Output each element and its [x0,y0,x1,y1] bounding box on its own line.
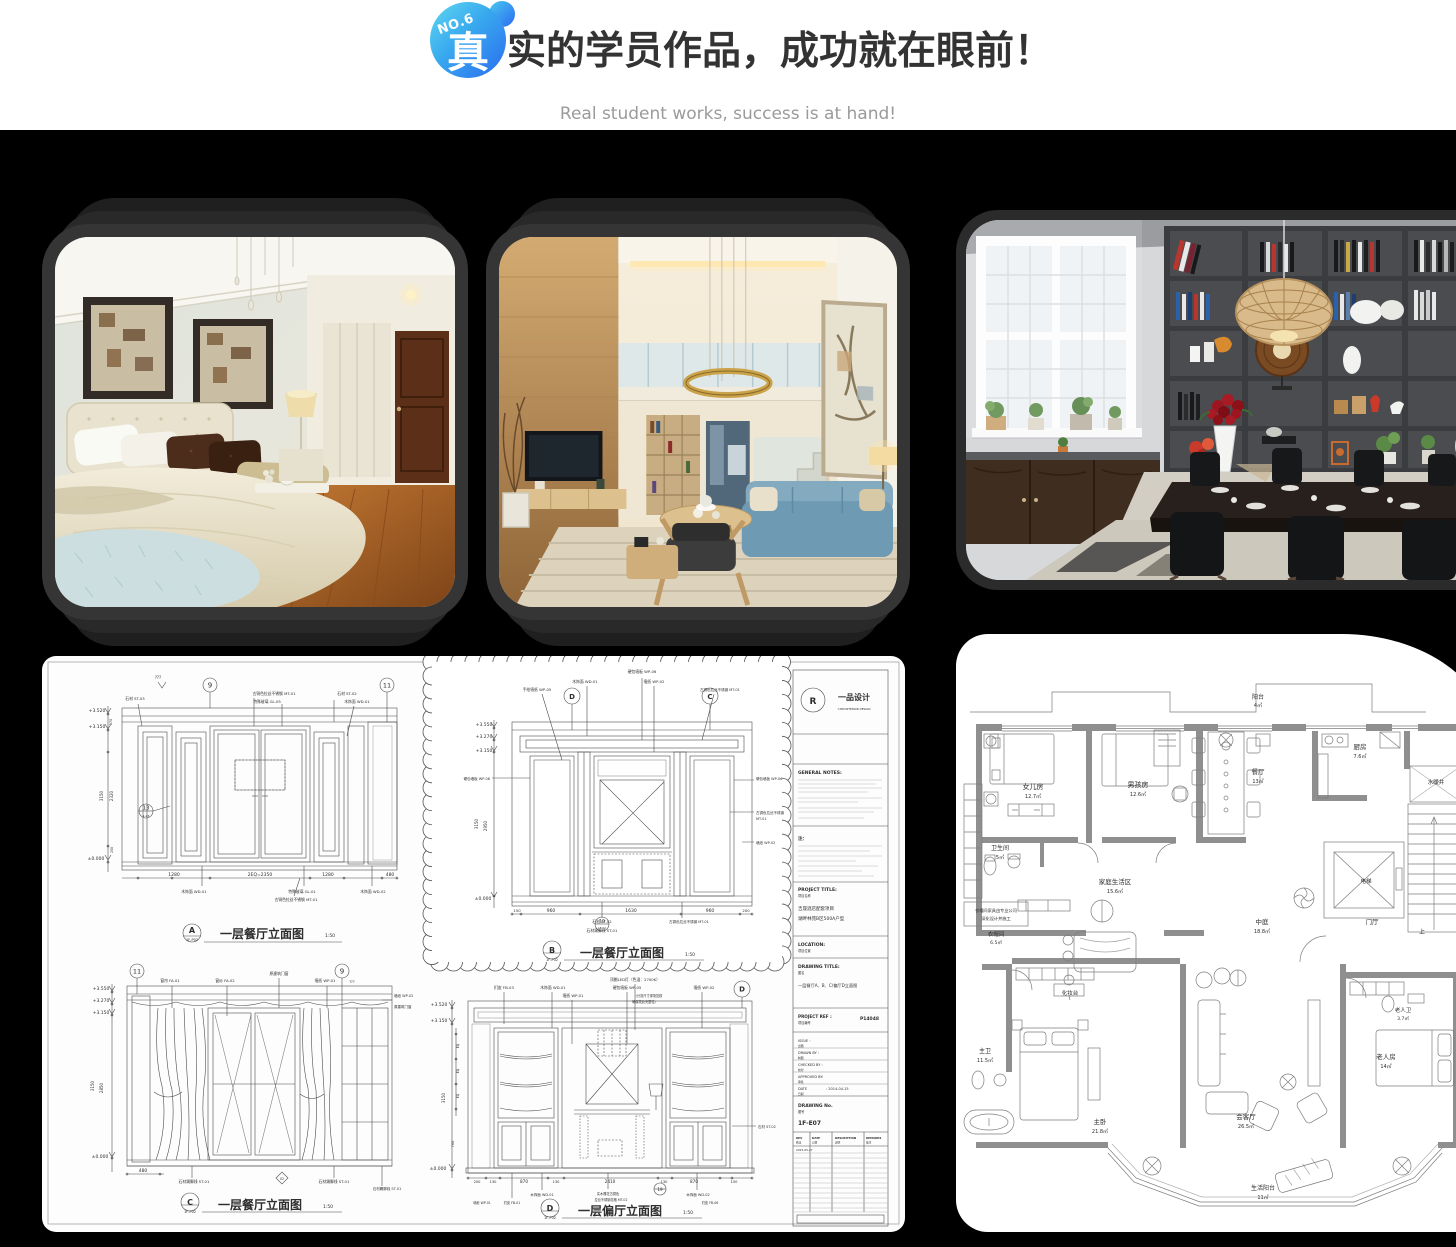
svg-text:3150: 3150 [441,1092,446,1103]
svg-text:15.6㎡: 15.6㎡ [1107,888,1123,895]
svg-text:3.7㎡: 3.7㎡ [1397,1015,1409,1022]
svg-text:19: 19 [657,1187,663,1192]
svg-text:古铜色拉丝不锈钢: 古铜色拉丝不锈钢 [756,810,784,815]
svg-text:项目名称: 项目名称 [798,893,812,898]
stairs [1408,804,1456,932]
svg-text:1:50: 1:50 [323,1204,333,1210]
svg-text:确保花纹完整性）: 确保花纹完整性） [632,999,658,1004]
svg-text:一层餐厅立面图: 一层餐厅立面图 [220,926,304,941]
svg-text:拉丝不锈钢花格 MT-02: 拉丝不锈钢花格 MT-02 [595,1197,628,1202]
svg-text:一层餐厅立面图: 一层餐厅立面图 [580,945,664,960]
svg-text:7.6㎡: 7.6㎡ [1354,753,1367,760]
svg-text:特殊玻璃 GL-01: 特殊玻璃 GL-01 [288,889,316,894]
photo-card-bedroom[interactable] [42,224,468,620]
svg-text:阳台: 阳台 [1252,693,1264,701]
living-room-photo [499,237,897,607]
svg-text:校对: 校对 [798,1068,804,1072]
svg-text:APPROVED BY:: APPROVED BY: [798,1075,823,1079]
svg-text:图号: 图号 [798,1109,804,1114]
svg-text:DRAWN BY :: DRAWN BY : [798,1051,819,1055]
svg-text:960: 960 [547,908,556,914]
svg-text:顶棚LED灯（色温：2700K）: 顶棚LED灯（色温：2700K） [610,977,660,982]
svg-text:1F-P02: 1F-P02 [184,1210,196,1214]
blue-sofa [742,481,893,557]
svg-text:深化设计并施工: 深化设计并施工 [981,915,1010,922]
svg-text:1-03: 1-03 [143,814,150,818]
bookshelf [646,415,700,515]
svg-text:石材踢脚线 ST-01: 石材踢脚线 ST-01 [179,1179,210,1184]
svg-text:2850: 2850 [99,1082,104,1093]
svg-text:特殊玻璃 GL-05: 特殊玻璃 GL-05 [253,699,281,704]
svg-text:实木雕花古铜色: 实木雕花古铜色 [597,1191,620,1196]
svg-text:REV: REV [796,1136,803,1140]
svg-text:2950: 2950 [483,820,488,831]
kitchen-fixtures [1318,732,1400,798]
elevation-sheet: ???+3.520+3.150±0.0003703150232025012802… [42,656,905,1232]
svg-text:古铜色拉丝不锈钢 MT-01: 古铜色拉丝不锈钢 MT-01 [252,691,296,696]
svg-text:18.8㎡: 18.8㎡ [1254,928,1270,935]
svg-text:石材踢脚线 ST-01: 石材踢脚线 ST-01 [587,928,618,933]
svg-text:木饰面 WD-01: 木饰面 WD-01 [530,1192,554,1197]
svg-text:C: C [707,693,712,701]
svg-text:1:50: 1:50 [683,1210,693,1216]
svg-text:DATE: DATE [798,1087,807,1091]
floor-plan: 女儿房12.7㎡男孩房12.6㎡阳台4㎡餐厅13㎡厨房7.6㎡水暖井电梯中庭18… [956,634,1456,1232]
svg-text:墙纸 WP-01: 墙纸 WP-01 [563,993,585,998]
lounge-furniture [1196,968,1328,1132]
svg-text:2015.05.27: 2015.05.27 [796,1148,813,1152]
svg-text:MT-01: MT-01 [756,817,767,821]
svg-text:11㎡: 11㎡ [1257,1194,1268,1201]
svg-text:主卫: 主卫 [979,1047,991,1055]
balcony-items [1219,733,1270,747]
note-box [964,902,1028,926]
student-works-section: NO.6 真 实的学员作品，成功就在眼前！ Real student works… [0,0,1456,1247]
svg-text:1280: 1280 [168,872,180,878]
svg-text:6.5㎡: 6.5㎡ [990,939,1002,946]
svg-text:石材踢脚线 ST-01: 石材踢脚线 ST-01 [319,1179,350,1184]
svg-text:9: 9 [340,968,344,976]
svg-text:3150: 3150 [474,818,479,829]
svg-text:原建筑门窗: 原建筑门窗 [394,1004,412,1009]
door [395,331,449,483]
svg-text:说明: 说明 [835,1141,841,1145]
svg-text:古铜色拉丝不锈钢 MT-01: 古铜色拉丝不锈钢 MT-01 [700,687,740,692]
svg-text:EQ: EQ [456,1093,460,1098]
svg-text:21.8㎡: 21.8㎡ [1092,1128,1108,1135]
svg-text:木饰面 WD-01: 木饰面 WD-01 [344,699,370,704]
svg-text:窗帘 FA-01: 窗帘 FA-01 [160,978,180,983]
svg-text:湖畔林苑B区500A户型: 湖畔林苑B区500A户型 [798,915,845,922]
svg-text:Y-PIN INTERIOR DESIGN: Y-PIN INTERIOR DESIGN [838,707,871,711]
svg-text:370: 370 [109,719,113,726]
svg-text:480: 480 [386,872,395,878]
svg-text:墙纸 WP-02: 墙纸 WP-02 [756,840,775,845]
svg-text:1F-E07: 1F-E07 [798,1120,821,1127]
svg-text:±0.000: ±0.000 [430,1166,447,1172]
svg-text:GENERAL NOTES:: GENERAL NOTES: [798,770,842,776]
svg-text:A: A [189,926,196,935]
photo-frame [486,224,910,620]
svg-text:200: 200 [742,908,750,913]
svg-text:480: 480 [139,1168,148,1174]
svg-text:4㎡: 4㎡ [1254,702,1262,709]
svg-text:11.5㎡: 11.5㎡ [977,1057,993,1064]
elevation-view-c [109,964,392,1212]
svg-text:原建筑门窗: 原建筑门窗 [270,971,289,976]
walls [976,724,1456,1148]
svg-text:卫生间: 卫生间 [991,844,1009,852]
svg-text:老人卫: 老人卫 [1395,1006,1412,1014]
svg-text:±0.000: ±0.000 [475,896,492,902]
svg-text:+3.550: +3.550 [93,986,110,992]
svg-text:960: 960 [706,908,715,914]
svg-text:D: D [547,1204,554,1213]
wardrobe [323,323,391,477]
svg-text:上: 上 [1419,928,1425,936]
svg-text:11: 11 [133,968,141,976]
svg-text:硬包墙板 WP-05: 硬包墙板 WP-05 [613,985,642,990]
ceiling [618,237,837,263]
elevation-sheet-card: ???+3.520+3.150±0.0003703150232025012802… [42,656,905,1232]
svg-text:DESCRIPTION: DESCRIPTION [835,1136,857,1140]
svg-text:13㎡: 13㎡ [1252,778,1263,785]
svg-text:木饰面 WD-01: 木饰面 WD-01 [540,985,566,990]
svg-text:墙纸 WP-02: 墙纸 WP-02 [394,993,413,998]
svg-text:日期: 日期 [798,1092,804,1096]
svg-text:1630: 1630 [625,908,637,914]
svg-text:一层餐厅A、B、C/偏厅D立面图: 一层餐厅A、B、C/偏厅D立面图 [798,982,857,989]
svg-text:扪皮 FB-01: 扪皮 FB-01 [504,1200,521,1205]
svg-text:墙纸 WP-01: 墙纸 WP-01 [315,978,337,983]
svg-text:14㎡: 14㎡ [1380,1063,1391,1070]
view-a-labels: ???+3.520+3.150±0.0003703150232025012802… [88,675,395,942]
svg-text:石材 ST-02: 石材 ST-02 [592,919,612,924]
svg-text:修改: 修改 [796,1141,802,1145]
svg-text:+3.520: +3.520 [89,708,106,714]
svg-text:主卧: 主卧 [1094,1117,1108,1126]
svg-text:12.7㎡: 12.7㎡ [1025,793,1041,800]
svg-text:PROJECT TITLE:: PROJECT TITLE: [798,887,837,893]
svg-text:???: ??? [155,675,161,680]
svg-text:木饰面 WD-01: 木饰面 WD-01 [572,679,598,684]
svg-text:1:50: 1:50 [685,952,695,958]
title-block-labels: R一品设计Y-PIN INTERIOR DESIGNGENERAL NOTES:… [796,692,881,1152]
svg-text:项目编号: 项目编号 [798,1020,811,1025]
svg-text:门厅: 门厅 [1366,917,1380,926]
svg-text:DATE: DATE [812,1136,820,1140]
svg-text:250: 250 [110,847,114,853]
master-bath-fixtures [964,1071,1014,1134]
svg-text:+3.520: +3.520 [431,1002,448,1008]
svg-text:木饰面 WD-02: 木饰面 WD-02 [686,1192,710,1197]
svg-text:项目位置: 项目位置 [798,948,811,953]
svg-text:CHECKED BY :: CHECKED BY : [798,1063,823,1067]
svg-text:ISSUE :: ISSUE : [798,1039,811,1043]
svg-text:扪皮 FB-06: 扪皮 FB-06 [702,1200,719,1205]
svg-text:老人房: 老人房 [1376,1052,1396,1061]
svg-text:女儿房: 女儿房 [1023,782,1044,791]
svg-text:: 2014-04-15: : 2014-04-15 [826,1087,849,1091]
photo-frame [42,224,468,620]
svg-text:+3.270: +3.270 [93,998,110,1004]
photo-frame [956,210,1456,590]
svg-text:760: 760 [451,1141,455,1148]
svg-text:150: 150 [513,908,521,913]
svg-text:图名: 图名 [798,970,804,975]
svg-text:1:50: 1:50 [325,933,335,939]
window-glow [966,220,1142,438]
svg-text:R: R [810,697,817,707]
svg-text:+3.150: +3.150 [93,1010,110,1016]
svg-text:1F-P02: 1F-P02 [544,1216,556,1220]
svg-text:餐厅: 餐厅 [1252,767,1266,776]
section-title: 实的学员作品，成功就在眼前！ [507,20,1053,76]
svg-text:P14048: P14048 [860,1016,879,1022]
svg-text:B: B [549,946,555,955]
svg-text:REMARKS: REMARKS [866,1136,881,1140]
svg-text:C: C [187,1198,193,1207]
dining-room-render [966,220,1456,580]
svg-text:男孩房: 男孩房 [1128,780,1149,789]
svg-text:130: 130 [490,1180,498,1184]
badge-char: 真 [447,19,489,80]
svg-text:家庭生活区: 家庭生活区 [1099,877,1132,886]
section-subtitle: Real student works, success is at hand! [0,104,1456,124]
svg-text:+3.550: +3.550 [476,722,493,728]
svg-text:硬包墙板 WP-06: 硬包墙板 WP-06 [628,669,657,674]
svg-text:生活阳台: 生活阳台 [1251,1184,1275,1192]
svg-text:石材 ST-03: 石材 ST-03 [125,696,145,701]
svg-text:200: 200 [474,1180,482,1184]
bookshelf [1164,226,1456,472]
svg-text:化妆台: 化妆台 [1062,989,1079,997]
svg-text:DRAWING No.: DRAWING No. [798,1103,833,1109]
view-d-labels: +3.520+3.150±0.0003150EQEQEQ760200130870… [430,977,776,1220]
svg-text:硬包墙板 WP-06: 硬包墙板 WP-06 [464,776,490,781]
balcony-bay [1108,1144,1442,1206]
svg-text:+3.150: +3.150 [89,724,106,730]
svg-text:备注: 备注 [866,1141,872,1145]
svg-text:石材 ST-02: 石材 ST-02 [337,691,357,696]
svg-text:3150: 3150 [90,1080,95,1091]
title-block [793,670,888,1226]
svg-text:厨房: 厨房 [1354,742,1367,751]
floor-plan-drawing [964,684,1456,1206]
svg-text:+3.150: +3.150 [431,1018,448,1024]
svg-text:日期: 日期 [812,1141,818,1145]
svg-text:窗纱 FA-02: 窗纱 FA-02 [215,978,235,983]
master-bedroom-furniture [1012,968,1100,1120]
svg-text:±0.000: ±0.000 [88,856,105,862]
svg-text:870: 870 [520,1179,528,1184]
svg-text:+3.270: +3.270 [476,734,493,740]
no6-badge-icon: NO.6 真 [430,2,506,78]
photo-card-dining-room[interactable] [956,210,1456,590]
svg-text:LOCATION:: LOCATION: [798,942,825,948]
svg-text:11: 11 [383,682,391,690]
svg-text:9: 9 [208,682,212,690]
svg-text:石材踢脚线 ST-01: 石材踢脚线 ST-01 [373,1186,401,1191]
cove-light [630,261,825,267]
svg-text:PROJECT REF :: PROJECT REF : [798,1014,832,1019]
svg-text:D: D [569,693,575,701]
svg-text:墙纸 WP-01: 墙纸 WP-01 [473,1200,491,1205]
svg-text:???: ??? [349,980,355,984]
svg-text:墙纸 WP-02: 墙纸 WP-02 [694,985,716,990]
svg-text:1F-P02: 1F-P02 [186,938,198,942]
svg-text:墙纸 WP-02: 墙纸 WP-02 [644,679,666,684]
svg-text:3150: 3150 [99,790,104,801]
svg-text:1280: 1280 [322,872,334,878]
svg-text:石材 ST-02: 石材 ST-02 [758,1124,776,1129]
svg-text:一层餐厅立面图: 一层餐厅立面图 [218,1197,302,1212]
svg-text:古铜色拉丝不锈钢 MT-01: 古铜色拉丝不锈钢 MT-01 [669,919,709,924]
fan-symbol [1294,888,1314,908]
svg-text:EQ: EQ [456,1043,460,1048]
svg-text:02: 02 [280,1177,284,1181]
section-header: NO.6 真 实的学员作品，成功就在眼前！ Real student works… [0,0,1456,130]
photo-card-living-room[interactable] [486,224,910,620]
svg-text:注：: 注： [798,835,807,842]
svg-text:12.6㎡: 12.6㎡ [1130,791,1146,798]
svg-text:古铜色拉丝不锈钢 MT-01: 古铜色拉丝不锈钢 MT-01 [274,897,318,902]
svg-text:制图: 制图 [798,1056,804,1060]
svg-text:木饰面 WD-02: 木饰面 WD-02 [360,889,386,894]
svg-text:DRAWING TITLE:: DRAWING TITLE: [798,964,840,970]
svg-text:出图: 出图 [798,1044,804,1048]
svg-text:150: 150 [731,1180,739,1184]
svg-text:电梯: 电梯 [1360,877,1372,885]
svg-text:审核: 审核 [798,1080,804,1084]
bedroom-photo [55,237,455,607]
floor-plan-card: 女儿房12.7㎡男孩房12.6㎡阳台4㎡餐厅13㎡厨房7.6㎡水暖井电梯中庭18… [956,634,1456,1232]
svg-text:26.5㎡: 26.5㎡ [1238,1123,1254,1130]
svg-text:±0.000: ±0.000 [92,1154,109,1160]
svg-text:衣帽间家具由专业公司: 衣帽间家具由专业公司 [975,907,1017,914]
svg-text:+3.150: +3.150 [476,748,493,754]
svg-text:扪皮 FB-03: 扪皮 FB-03 [494,985,514,990]
svg-text:130: 130 [661,1180,669,1184]
svg-text:（分割尺寸现场复核: （分割尺寸现场复核 [634,993,663,998]
svg-text:EQ: EQ [456,1068,460,1073]
svg-text:D: D [739,986,745,994]
daughter-room-furniture [984,734,1054,816]
svg-text:2EQ=2350: 2EQ=2350 [248,872,273,878]
svg-text:13: 13 [143,806,150,812]
svg-text:会客厅: 会客厅 [1236,1112,1256,1121]
svg-text:水暖井: 水暖井 [1428,778,1445,786]
floor-plan-labels: 女儿房12.7㎡男孩房12.6㎡阳台4㎡餐厅13㎡厨房7.6㎡水暖井电梯中庭18… [975,693,1445,1201]
svg-text:一层偏厅立面图: 一层偏厅立面图 [578,1203,662,1218]
svg-text:手绘墙纸 WP-05: 手绘墙纸 WP-05 [523,687,552,692]
svg-text:2410: 2410 [605,1179,616,1184]
svg-text:硬包墙板 WP-06: 硬包墙板 WP-06 [756,776,782,781]
elder-room-furniture [1350,982,1454,1086]
svg-text:1F-P02: 1F-P02 [546,958,558,962]
svg-text:130: 130 [553,1180,561,1184]
svg-text:吉晟酒店配套项目: 吉晟酒店配套项目 [798,905,834,912]
svg-text:5㎡: 5㎡ [996,854,1004,861]
svg-text:2320: 2320 [109,790,114,801]
svg-text:一品设计: 一品设计 [838,692,870,702]
svg-text:中庭: 中庭 [1256,917,1270,926]
svg-text:870: 870 [690,1179,698,1184]
svg-text:木饰面 WD-01: 木饰面 WD-01 [181,889,207,894]
svg-text:衣帽间: 衣帽间 [988,930,1005,938]
